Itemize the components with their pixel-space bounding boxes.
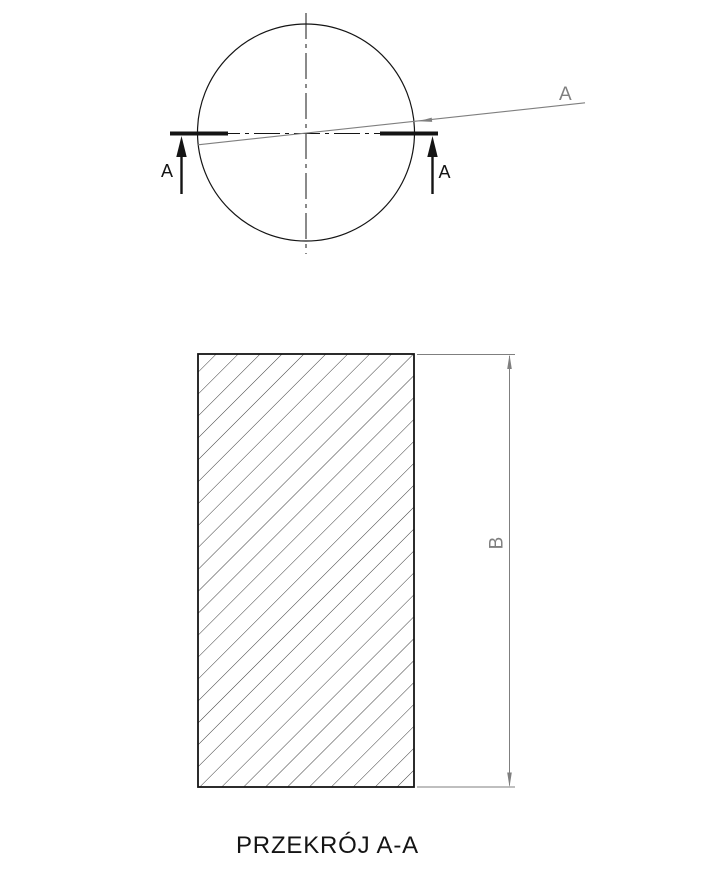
dimension-label-b: B (487, 537, 508, 550)
dimension-arrowhead-down-icon (507, 773, 512, 788)
engineering-drawing-canvas: A A A B PRZEKRÓJ A-A (0, 0, 706, 873)
section-label-right: A (439, 162, 452, 182)
section-arrow-left-head-icon (176, 136, 186, 157)
section-view: B (198, 354, 515, 787)
leader-arrowhead-icon (419, 118, 433, 122)
top-view: A A A (161, 13, 585, 254)
dimension-arrowhead-up-icon (507, 355, 512, 370)
section-arrow-left (176, 136, 186, 194)
cutting-plane-leader-line (198, 103, 585, 145)
section-face-hatched (198, 354, 414, 787)
drawing-svg: A A A B PRZEKRÓJ A-A (0, 0, 706, 873)
section-label-left: A (161, 161, 174, 181)
section-arrow-right (427, 136, 437, 194)
cutting-plane-label: A (559, 84, 572, 105)
section-arrow-right-head-icon (427, 136, 437, 157)
section-caption: PRZEKRÓJ A-A (236, 832, 419, 859)
